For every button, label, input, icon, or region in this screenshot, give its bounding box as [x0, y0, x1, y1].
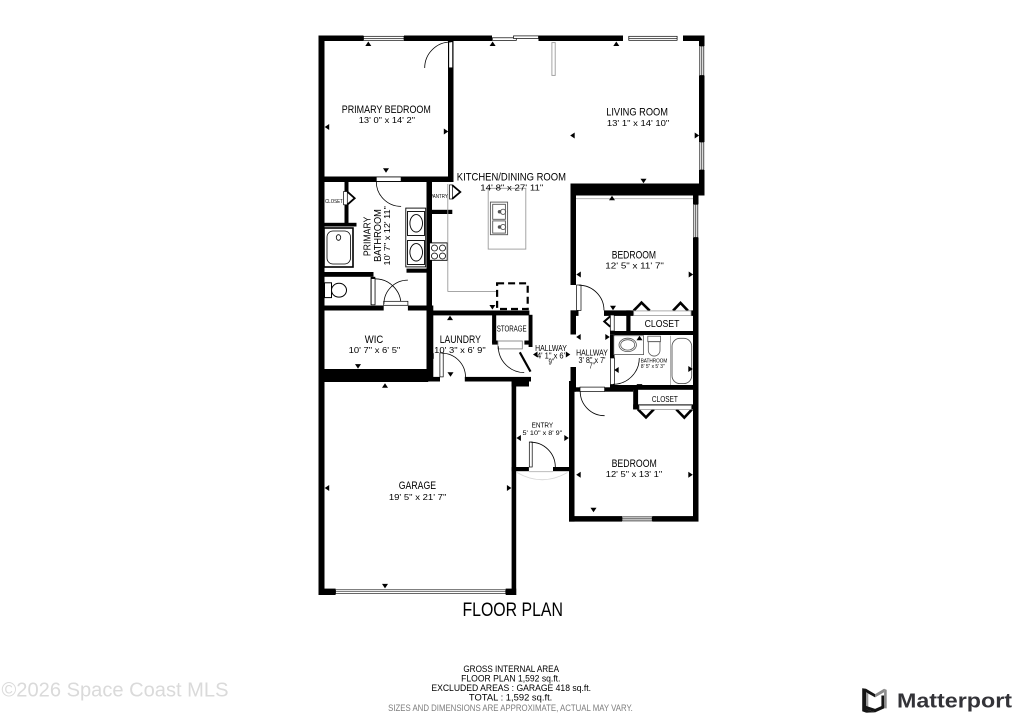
- svg-text:10' 3" x 6' 9": 10' 3" x 6' 9": [434, 345, 486, 355]
- svg-text:CLOSET: CLOSET: [325, 199, 343, 205]
- svg-text:GROSS INTERNAL AREA: GROSS INTERNAL AREA: [463, 664, 559, 674]
- svg-text:GARAGE: GARAGE: [399, 480, 436, 492]
- svg-text:©2026 Space Coast MLS: ©2026 Space Coast MLS: [2, 679, 229, 702]
- svg-text:ENTRY: ENTRY: [532, 420, 554, 429]
- svg-text:5' 10" x 8' 9": 5' 10" x 8' 9": [523, 430, 563, 437]
- svg-text:SIZES AND DIMENSIONS ARE APPRO: SIZES AND DIMENSIONS ARE APPROXIMATE, AC…: [388, 703, 633, 713]
- svg-text:13' 0" x 14' 2": 13' 0" x 14' 2": [359, 115, 415, 125]
- svg-text:STORAGE: STORAGE: [497, 324, 527, 334]
- svg-text:PRIMARY: PRIMARY: [362, 217, 373, 257]
- svg-text:12' 5" x 11' 7": 12' 5" x 11' 7": [605, 261, 664, 271]
- svg-text:9": 9": [549, 358, 555, 367]
- svg-text:Matterport: Matterport: [897, 690, 1012, 712]
- svg-text:10' 7" x 12' 11": 10' 7" x 12' 11": [382, 206, 392, 265]
- svg-text:19' 5" x 21' 7": 19' 5" x 21' 7": [389, 492, 447, 502]
- svg-text:EXCLUDED AREAS : GARAGE 418 s: EXCLUDED AREAS : GARAGE 418 sq.ft.: [431, 683, 591, 693]
- svg-text:10' 7" x 6' 5": 10' 7" x 6' 5": [349, 345, 401, 355]
- svg-text:PANTRY: PANTRY: [430, 194, 448, 200]
- svg-text:LIVING ROOM: LIVING ROOM: [606, 107, 668, 119]
- svg-text:8' 5" x 5' 3": 8' 5" x 5' 3": [641, 364, 665, 370]
- svg-text:14' 8" x 27' 11": 14' 8" x 27' 11": [480, 182, 543, 192]
- svg-text:CLOSET: CLOSET: [652, 395, 678, 404]
- svg-text:TOTAL : 1,592 sq.ft.: TOTAL : 1,592 sq.ft.: [469, 693, 552, 703]
- svg-text:CLOSET: CLOSET: [645, 319, 680, 330]
- svg-text:13' 1" x 14' 10": 13' 1" x 14' 10": [607, 118, 669, 128]
- svg-text:7": 7": [589, 361, 595, 370]
- svg-text:FLOOR PLAN: FLOOR PLAN: [462, 599, 563, 621]
- svg-text:12' 5" x 13' 1": 12' 5" x 13' 1": [606, 469, 662, 479]
